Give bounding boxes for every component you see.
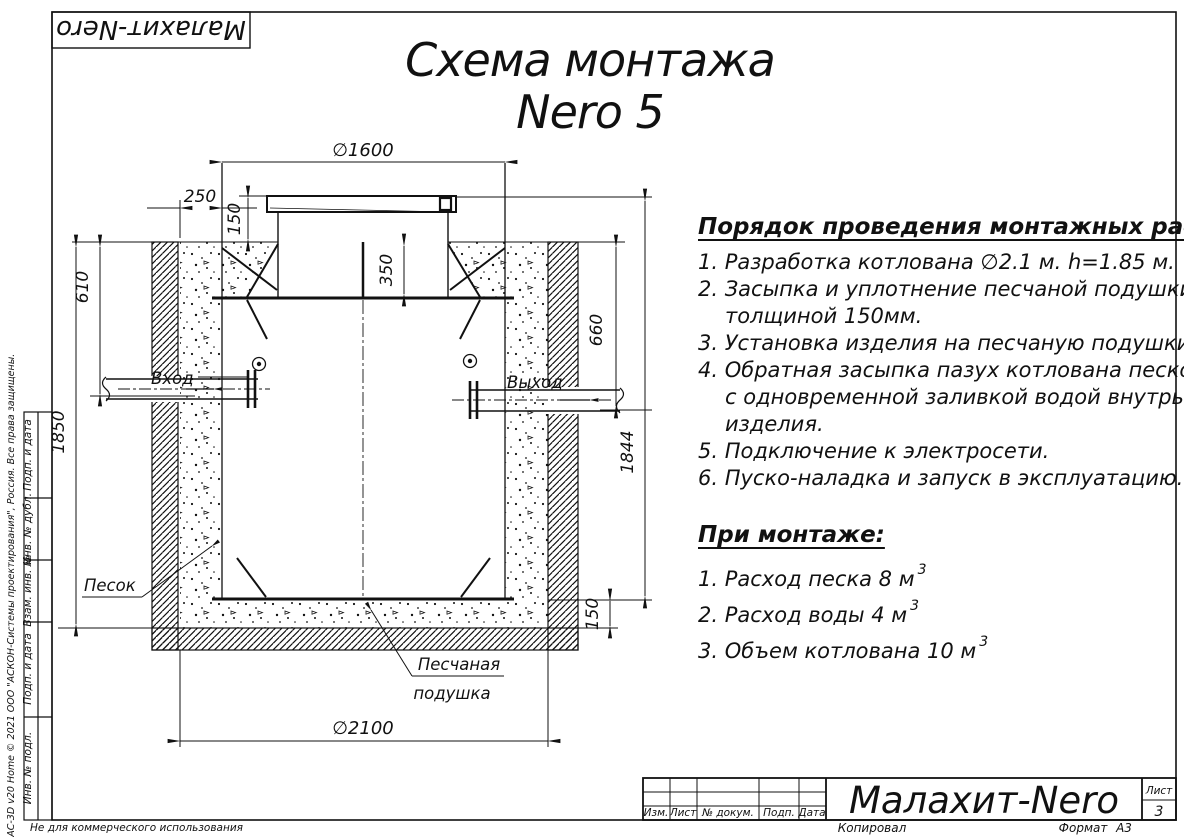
montage-item: 2. Расход воды 4 м3 <box>698 592 1176 628</box>
instruction-step: 3. Установка изделия на песчаную подушки… <box>698 330 1176 357</box>
cushion-label-line2: подушка <box>413 684 490 703</box>
dim-610: 610 <box>73 271 93 303</box>
montage-item: 3. Объем котлована 10 м3 <box>698 628 1176 664</box>
montage-item-sup: 3 <box>979 634 988 650</box>
lid-handle <box>440 198 451 210</box>
instructions-heading: Порядок проведения монтажных работ: <box>698 214 1176 240</box>
instruction-step: 2. Засыпка и уплотнение песчаной подушки <box>698 276 1176 303</box>
format-label: Формат <box>1059 821 1109 835</box>
dim-1850: 1850 <box>49 410 69 453</box>
instruction-step: 5. Подключение к электросети. <box>698 438 1176 465</box>
montage-item-text: 1. Расход песка 8 м <box>698 567 915 591</box>
dim-250: 250 <box>184 187 216 207</box>
dim-2100: ∅2100 <box>332 718 394 739</box>
stamp-cell-label: Взам. инв. № <box>22 555 34 626</box>
corner-logo: Малахит-Nero <box>56 14 246 44</box>
instruction-step: 1. Разработка котлована ∅2.1 м. h=1.85 м… <box>698 249 1176 276</box>
kompas-copyright: КОМПАС-3D v20 Home © 2021 ООО "АСКОН-Сис… <box>6 354 17 837</box>
col-data: Дата <box>797 807 825 819</box>
montage-item-text: 3. Объем котлована 10 м <box>698 639 976 663</box>
dim-660: 660 <box>587 314 607 346</box>
montage-heading: При монтаже: <box>698 522 1176 548</box>
sand-label: Песок <box>84 576 136 595</box>
instruction-step-wrap: толщиной 150мм. <box>698 303 1176 330</box>
page-title-line1: Схема монтажа <box>340 34 840 86</box>
dim-150-top: 150 <box>225 203 245 235</box>
montage-item-sup: 3 <box>910 598 919 614</box>
instructions-panel: Порядок проведения монтажных работ: 1. Р… <box>698 214 1176 492</box>
stamp-cell-label: Подп. и дата <box>22 633 34 705</box>
title-block-text: Изм. Лист № докум. Подп. Дата Малахит-Ne… <box>644 779 1174 835</box>
col-ndoc: № докум. <box>701 807 754 819</box>
stamp-cell-label: Подп. и дата <box>22 419 34 491</box>
cushion-label-line1: Песчаная <box>418 655 500 674</box>
stamp-cell-label: Инв. № подл. <box>22 732 34 804</box>
montage-item-text: 2. Расход воды 4 м <box>698 603 907 627</box>
sand-backfill <box>180 242 548 628</box>
drawing-sheet: Малахит-Nero Подп. и дата Инв. № дубл. В… <box>0 0 1184 837</box>
dim-350: 350 <box>377 254 397 286</box>
page-title: Схема монтажа Nero 5 <box>340 34 840 138</box>
instruction-step-wrap: с одновременной заливкой водой внутрь <box>698 384 1176 411</box>
sheet-number: 3 <box>1155 804 1164 820</box>
montage-item-sup: 3 <box>918 562 927 578</box>
dim-1844: 1844 <box>618 430 638 473</box>
montage-item: 1. Расход песка 8 м3 <box>698 556 1176 592</box>
format-value: А3 <box>1115 821 1132 835</box>
montage-panel: При монтаже: 1. Расход песка 8 м3 2. Рас… <box>698 522 1176 664</box>
stamp-cell-label: Инв. № дубл. <box>22 493 34 565</box>
col-podp: Подп. <box>763 807 795 819</box>
dim-150-bottom: 150 <box>583 598 603 630</box>
not-commercial-note: Не для коммерческого использования <box>30 822 243 834</box>
copied-label: Копировал <box>838 821 907 835</box>
instruction-step: 4. Обратная засыпка пазух котлована песк… <box>698 357 1176 384</box>
inlet-label: Вход <box>151 369 194 388</box>
outlet-label: Выход <box>507 373 563 392</box>
tank-lid <box>267 196 456 212</box>
col-list: Лист <box>669 807 697 819</box>
sheet-label: Лист <box>1145 785 1173 797</box>
instruction-step: 6. Пуско-наладка и запуск в эксплуатацию… <box>698 465 1176 492</box>
col-izm: Изм. <box>644 807 669 819</box>
page-title-line2: Nero 5 <box>340 86 840 138</box>
instruction-step-wrap: изделия. <box>698 411 1176 438</box>
product-name: Малахит-Nero <box>849 779 1119 822</box>
dim-1600: ∅1600 <box>332 140 394 161</box>
